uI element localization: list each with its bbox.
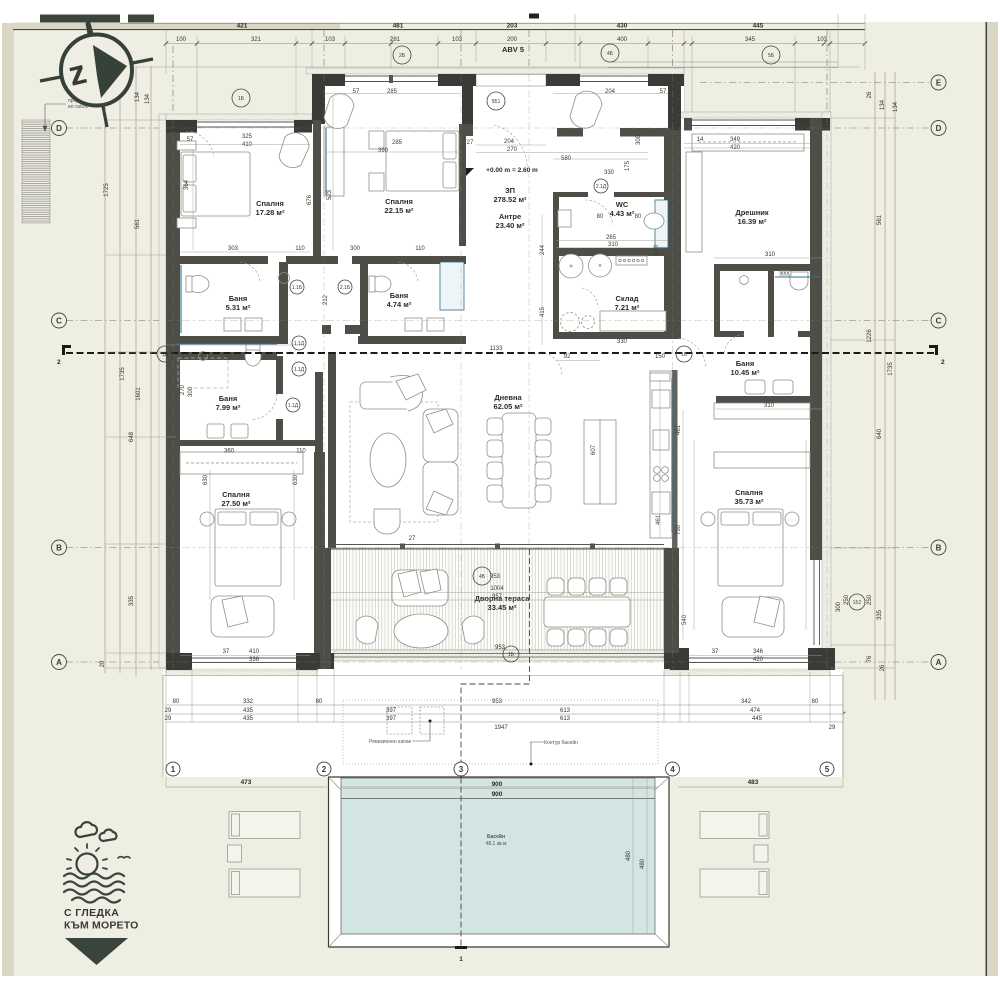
svg-text:33.45 м²: 33.45 м² [488, 603, 517, 612]
svg-text:Спалня: Спалня [256, 199, 284, 208]
svg-text:22.15 м²: 22.15 м² [385, 206, 414, 215]
svg-text:Баня: Баня [219, 394, 237, 403]
svg-text:4Б: 4Б [607, 51, 614, 57]
svg-text:270: 270 [180, 384, 186, 395]
svg-text:5Б1: 5Б1 [492, 99, 501, 105]
svg-text:420: 420 [753, 657, 764, 663]
svg-text:300: 300 [350, 246, 361, 252]
svg-text:103: 103 [817, 37, 828, 43]
svg-text:360: 360 [224, 449, 235, 455]
svg-text:27.50 м²: 27.50 м² [222, 499, 251, 508]
svg-text:1004: 1004 [490, 586, 504, 592]
svg-text:57: 57 [187, 137, 194, 143]
svg-text:2: 2 [322, 765, 327, 774]
svg-text:5Б: 5Б [768, 53, 775, 59]
svg-text:561: 561 [877, 214, 883, 225]
svg-text:26: 26 [880, 664, 886, 671]
svg-text:29: 29 [829, 725, 836, 731]
svg-text:336: 336 [249, 657, 260, 663]
svg-text:473: 473 [241, 779, 252, 786]
svg-text:1226: 1226 [867, 329, 873, 343]
svg-text:481: 481 [393, 23, 404, 30]
svg-text:390: 390 [378, 148, 389, 154]
svg-text:Баня: Баня [736, 359, 754, 368]
svg-text:7.99 м²: 7.99 м² [216, 403, 241, 412]
svg-text:4.74 м²: 4.74 м² [387, 300, 412, 309]
svg-text:27: 27 [467, 140, 474, 146]
svg-text:342: 342 [741, 699, 752, 705]
svg-text:2.1Б: 2.1Б [340, 285, 351, 291]
svg-text:676: 676 [307, 194, 313, 205]
svg-text:1Б2: 1Б2 [853, 600, 862, 606]
svg-text:80: 80 [635, 214, 642, 220]
svg-text:С ГЛЕДКА: С ГЛЕДКА [64, 907, 119, 919]
svg-text:203: 203 [507, 23, 518, 30]
svg-text:Спалня: Спалня [385, 197, 413, 206]
svg-text:400: 400 [617, 37, 628, 43]
svg-text:7.21 м²: 7.21 м² [615, 303, 640, 312]
svg-text:20: 20 [100, 660, 106, 667]
svg-text:Спалня: Спалня [735, 488, 763, 497]
svg-text:4.43 м²: 4.43 м² [610, 209, 635, 218]
svg-text:175: 175 [625, 160, 631, 171]
svg-text:134: 134 [145, 93, 151, 104]
svg-text:1.1Д: 1.1Д [294, 341, 305, 347]
svg-text:A: A [56, 658, 62, 667]
svg-text:300: 300 [836, 601, 842, 612]
svg-text:445: 445 [753, 23, 764, 30]
svg-text:4Б: 4Б [479, 574, 486, 580]
svg-text:1947: 1947 [494, 725, 508, 731]
svg-text:397: 397 [386, 708, 397, 714]
svg-text:B: B [936, 544, 942, 553]
svg-text:1133: 1133 [490, 346, 504, 352]
svg-text:Ревизионен капак: Ревизионен капак [369, 739, 411, 745]
svg-text:Контур басейн: Контур басейн [544, 739, 578, 746]
svg-text:5: 5 [825, 765, 830, 774]
svg-text:1Б: 1Б [681, 352, 688, 358]
svg-text:204: 204 [504, 139, 515, 145]
svg-text:480: 480 [640, 858, 646, 869]
svg-text:110: 110 [415, 246, 425, 252]
svg-text:Баня: Баня [390, 291, 408, 300]
svg-text:364: 364 [184, 179, 190, 190]
svg-text:410: 410 [249, 649, 260, 655]
svg-text:110: 110 [296, 449, 306, 455]
svg-text:134: 134 [893, 101, 899, 112]
svg-text:310: 310 [764, 403, 775, 409]
svg-text:Баня: Баня [229, 294, 247, 303]
svg-text:483: 483 [748, 779, 759, 786]
svg-text:270: 270 [507, 147, 518, 153]
svg-text:1725: 1725 [104, 183, 110, 197]
svg-text:250: 250 [867, 594, 873, 605]
svg-text:Дворна тераса: Дворна тераса [475, 594, 531, 603]
svg-text:1Б: 1Б [238, 96, 245, 102]
svg-text:421: 421 [237, 23, 248, 30]
svg-text:ABV 5: ABV 5 [502, 45, 524, 54]
svg-text:C: C [56, 317, 62, 326]
svg-text:62.05 м²: 62.05 м² [494, 402, 523, 411]
svg-text:957: 957 [492, 594, 503, 600]
svg-text:410: 410 [242, 142, 253, 148]
svg-text:29: 29 [165, 708, 172, 714]
svg-text:445: 445 [752, 716, 763, 722]
svg-text:2: 2 [57, 359, 61, 366]
svg-text:1: 1 [171, 765, 176, 774]
svg-text:B: B [56, 544, 62, 553]
svg-text:281: 281 [390, 37, 401, 43]
svg-text:1Б: 1Б [508, 652, 515, 658]
svg-text:278.52 м²: 278.52 м² [493, 195, 527, 204]
svg-text:244: 244 [540, 244, 546, 255]
svg-text:648: 648 [129, 431, 135, 442]
svg-text:+0.00 m = 2.60 m: +0.00 m = 2.60 m [486, 167, 538, 174]
svg-text:321: 321 [251, 37, 262, 43]
svg-text:204: 204 [605, 89, 616, 95]
svg-text:Спалня: Спалня [222, 490, 250, 499]
svg-text:300: 300 [636, 134, 642, 145]
svg-text:300: 300 [188, 386, 194, 397]
svg-text:1.1Д: 1.1Д [288, 403, 299, 409]
svg-text:523: 523 [327, 189, 333, 200]
svg-text:23.40 м²: 23.40 м² [496, 221, 525, 230]
svg-text:461: 461 [656, 514, 662, 525]
svg-text:92: 92 [564, 354, 571, 360]
svg-text:613: 613 [560, 716, 571, 722]
svg-text:80: 80 [316, 699, 323, 705]
svg-text:2: 2 [941, 359, 945, 366]
svg-text:561: 561 [135, 218, 141, 229]
svg-text:4: 4 [670, 765, 675, 774]
svg-text:Склад: Склад [616, 294, 639, 303]
svg-text:397: 397 [386, 716, 397, 722]
svg-text:17.28 м²: 17.28 м² [256, 208, 285, 217]
svg-text:415: 415 [540, 306, 546, 317]
svg-text:35.73 м²: 35.73 м² [735, 497, 764, 506]
svg-text:607: 607 [591, 444, 597, 455]
svg-text:1: 1 [459, 956, 463, 963]
svg-text:5.31 м²: 5.31 м² [226, 303, 251, 312]
svg-text:10.45 м²: 10.45 м² [731, 368, 760, 377]
svg-text:212: 212 [323, 294, 329, 305]
svg-text:Дневна: Дневна [494, 393, 522, 402]
svg-text:640: 640 [877, 428, 883, 439]
svg-text:1735: 1735 [888, 362, 894, 376]
svg-text:48.1 кв.м: 48.1 кв.м [486, 841, 507, 847]
svg-text:349: 349 [730, 137, 741, 143]
svg-text:1601: 1601 [136, 387, 142, 401]
svg-text:474: 474 [750, 708, 761, 714]
svg-text:29: 29 [165, 716, 172, 722]
svg-text:750: 750 [676, 524, 682, 535]
svg-text:335: 335 [129, 595, 135, 606]
svg-text:Басейн: Басейн [487, 833, 505, 840]
svg-text:285: 285 [392, 140, 403, 146]
svg-text:310: 310 [765, 252, 776, 258]
svg-text:D: D [936, 124, 942, 133]
svg-text:150: 150 [654, 244, 660, 255]
svg-text:613: 613 [560, 708, 571, 714]
svg-text:100: 100 [176, 37, 187, 43]
svg-text:80: 80 [812, 699, 819, 705]
svg-text:26: 26 [867, 91, 873, 98]
svg-text:3: 3 [459, 765, 464, 774]
svg-text:80: 80 [597, 214, 604, 220]
svg-text:E: E [936, 79, 942, 88]
svg-text:430: 430 [617, 23, 628, 30]
svg-text:330: 330 [604, 170, 615, 176]
svg-text:103: 103 [325, 37, 336, 43]
svg-text:630: 630 [203, 474, 209, 485]
svg-text:435: 435 [243, 716, 254, 722]
svg-text:2Б: 2Б [399, 53, 406, 59]
svg-text:250: 250 [844, 594, 850, 605]
svg-text:37: 37 [712, 649, 719, 655]
svg-text:37: 37 [223, 649, 230, 655]
svg-text:27: 27 [409, 536, 416, 542]
svg-text:325: 325 [242, 134, 253, 140]
svg-text:265: 265 [606, 235, 617, 241]
svg-text:461: 461 [676, 424, 682, 435]
svg-text:Дрешник: Дрешник [735, 208, 768, 217]
svg-text:КЪМ МОРЕТО: КЪМ МОРЕТО [64, 920, 138, 932]
svg-text:WC: WC [616, 200, 629, 209]
svg-text:C: C [936, 317, 942, 326]
svg-text:346: 346 [753, 649, 764, 655]
svg-text:ЗП: ЗП [505, 186, 515, 195]
svg-text:1735: 1735 [120, 367, 126, 381]
svg-text:200: 200 [507, 37, 518, 43]
svg-text:1.1Д: 1.1Д [294, 367, 305, 373]
svg-text:57: 57 [660, 89, 667, 95]
svg-text:1Д: 1Д [162, 352, 169, 358]
svg-text:80: 80 [173, 699, 180, 705]
svg-text:Антре: Антре [499, 212, 521, 221]
svg-text:D: D [56, 124, 62, 133]
svg-text:435: 435 [243, 708, 254, 714]
svg-text:953: 953 [490, 574, 501, 580]
svg-text:A: A [936, 658, 942, 667]
svg-text:335: 335 [877, 609, 883, 620]
svg-text:57: 57 [353, 89, 360, 95]
svg-text:480: 480 [626, 850, 632, 861]
svg-text:332: 332 [243, 699, 254, 705]
svg-text:134: 134 [880, 99, 886, 110]
svg-text:14: 14 [697, 137, 704, 143]
svg-text:110: 110 [295, 246, 305, 252]
svg-text:150: 150 [655, 354, 666, 360]
svg-text:303: 303 [228, 246, 239, 252]
svg-text:345: 345 [745, 37, 756, 43]
svg-text:900: 900 [492, 791, 503, 798]
svg-text:76: 76 [867, 655, 873, 662]
svg-text:16.39 м²: 16.39 м² [738, 217, 767, 226]
svg-text:330: 330 [617, 339, 628, 345]
svg-text:1.1Б: 1.1Б [292, 285, 303, 291]
svg-text:2.1Д: 2.1Д [596, 184, 607, 190]
svg-text:285: 285 [387, 89, 398, 95]
svg-text:134: 134 [135, 91, 141, 102]
